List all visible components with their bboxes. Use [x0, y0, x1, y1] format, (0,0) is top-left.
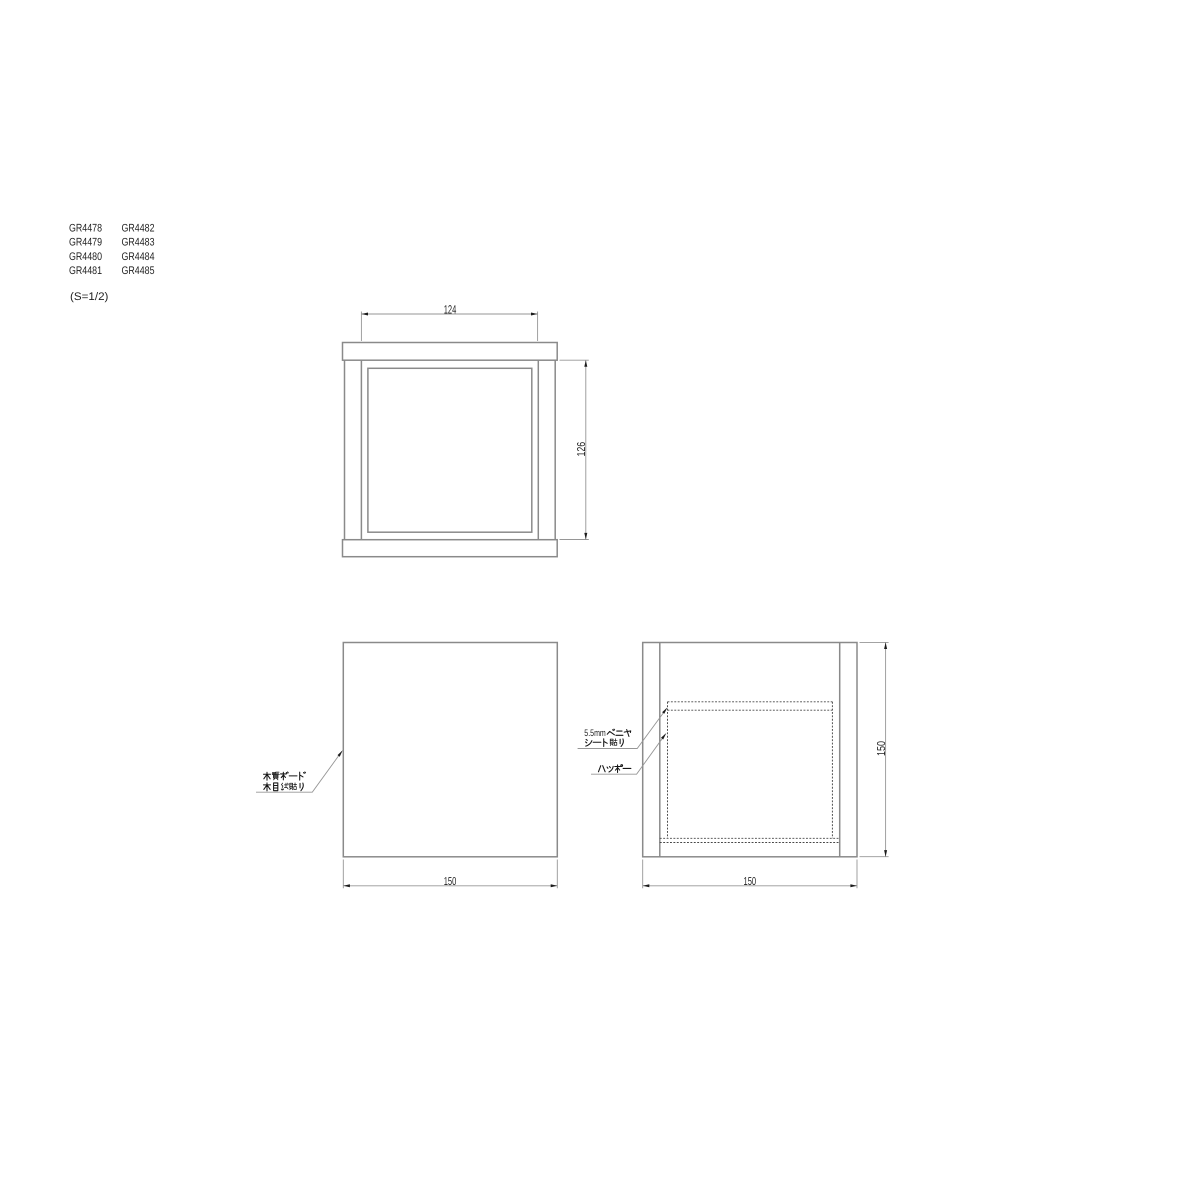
svg-text:150: 150: [444, 876, 457, 888]
svg-text:GR4478: GR4478: [69, 223, 102, 235]
svg-text:GR4479: GR4479: [69, 237, 102, 249]
svg-text:(S=1/2): (S=1/2): [70, 291, 108, 303]
svg-text:124: 124: [444, 302, 457, 316]
svg-text:GR4482: GR4482: [122, 223, 155, 235]
svg-text:GR4480: GR4480: [69, 251, 102, 263]
svg-text:GR4483: GR4483: [122, 237, 155, 249]
svg-text:GR4484: GR4484: [122, 251, 155, 263]
svg-text:GR4485: GR4485: [122, 265, 155, 277]
svg-text:150: 150: [876, 741, 888, 756]
svg-text:5.5mm: 5.5mm: [584, 728, 606, 739]
svg-text:150: 150: [744, 876, 757, 888]
svg-text:126: 126: [576, 442, 588, 457]
svg-text:GR4481: GR4481: [69, 265, 102, 277]
